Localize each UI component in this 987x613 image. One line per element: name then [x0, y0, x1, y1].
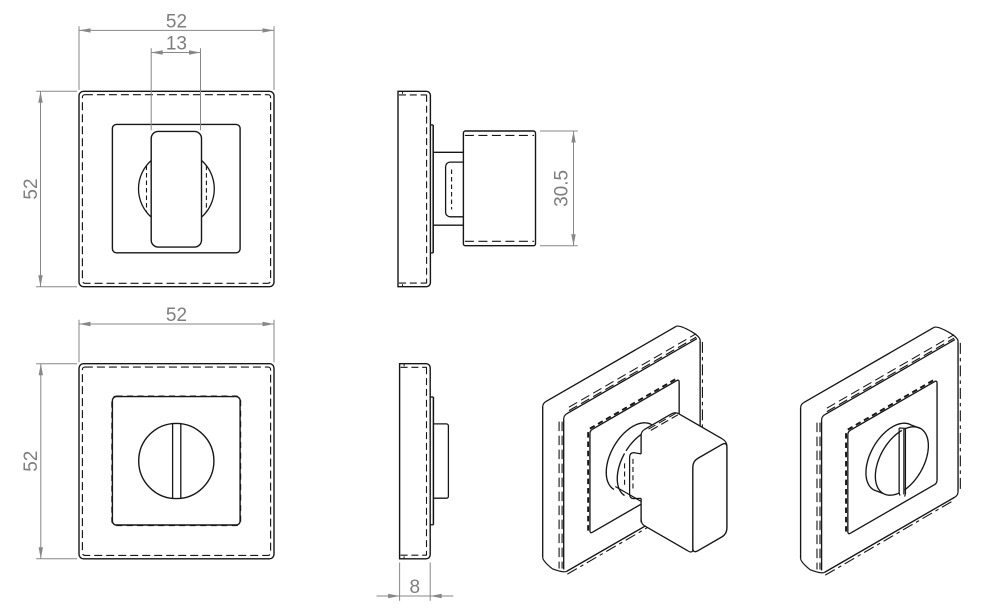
svg-text:8: 8 — [410, 577, 421, 598]
svg-text:30.5: 30.5 — [552, 170, 573, 207]
svg-text:52: 52 — [21, 451, 42, 472]
svg-text:13: 13 — [166, 34, 187, 55]
svg-text:52: 52 — [166, 305, 187, 326]
svg-text:52: 52 — [21, 178, 42, 199]
svg-text:52: 52 — [166, 11, 187, 32]
